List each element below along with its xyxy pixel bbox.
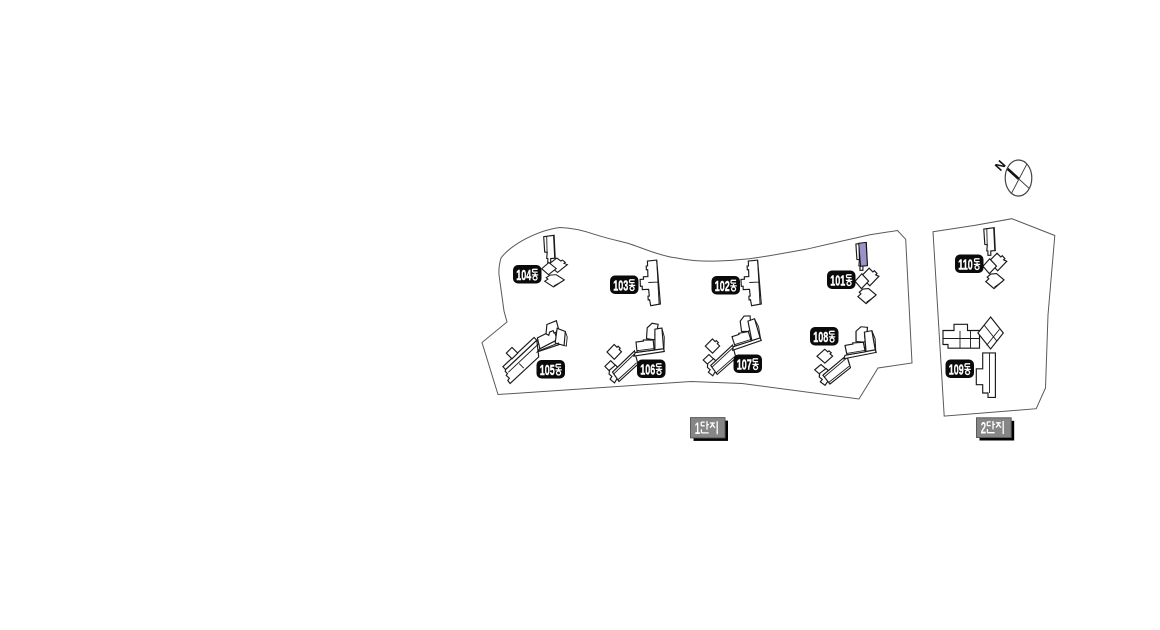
svg-text:107: 107 (737, 356, 752, 373)
svg-text:109: 109 (949, 361, 964, 378)
svg-text:110: 110 (958, 256, 973, 273)
svg-text:106: 106 (640, 361, 655, 378)
svg-text:103: 103 (613, 277, 628, 294)
svg-text:102: 102 (715, 278, 730, 295)
svg-text:108: 108 (813, 329, 828, 346)
svg-text:101: 101 (830, 272, 845, 289)
svg-text:104: 104 (516, 267, 531, 284)
svg-text:105: 105 (540, 362, 555, 379)
svg-text:1: 1 (695, 419, 701, 437)
svg-text:2: 2 (981, 419, 986, 437)
